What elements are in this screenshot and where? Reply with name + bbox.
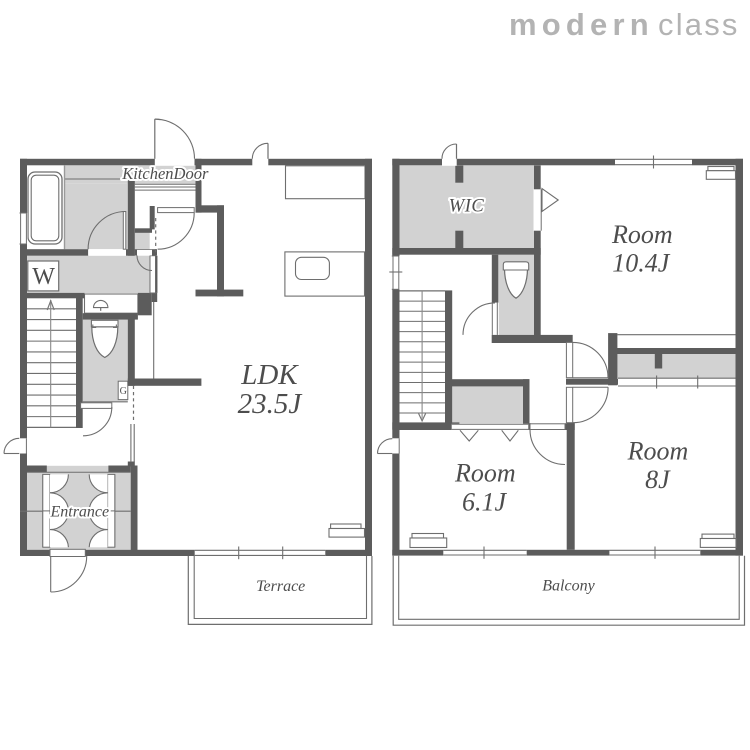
svg-text:class: class <box>658 7 740 42</box>
svg-text:10.4J: 10.4J <box>612 249 671 278</box>
svg-text:6.1J: 6.1J <box>462 488 508 517</box>
svg-text:Terrace: Terrace <box>256 578 305 595</box>
svg-text:23.5J: 23.5J <box>238 388 303 420</box>
svg-text:G: G <box>120 386 127 397</box>
svg-text:modern: modern <box>509 7 654 42</box>
svg-text:Entrance: Entrance <box>49 504 109 521</box>
svg-text:Room: Room <box>611 220 673 249</box>
svg-text:Balcony: Balcony <box>542 578 595 595</box>
svg-text:Room: Room <box>627 436 689 465</box>
svg-text:WIC: WIC <box>449 197 485 217</box>
svg-text:LDK: LDK <box>240 359 299 391</box>
svg-text:Room: Room <box>454 459 516 488</box>
svg-text:8J: 8J <box>645 465 671 494</box>
svg-text:KitchenDoor: KitchenDoor <box>121 164 209 183</box>
svg-text:W: W <box>32 264 55 290</box>
